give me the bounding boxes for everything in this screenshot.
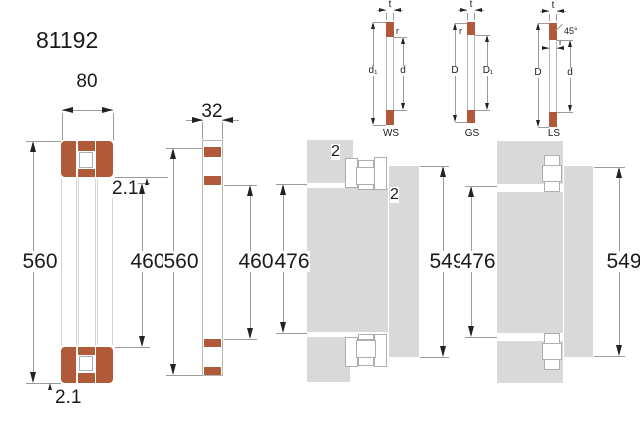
dim-r-bottom-label: 2.1 — [55, 388, 81, 407]
washer-section — [386, 110, 394, 125]
arrow-left-icon — [475, 8, 482, 12]
extension-line — [224, 339, 257, 340]
extension-line — [224, 185, 257, 186]
arrow-down-icon — [401, 103, 405, 110]
bearing-drawing-canvas: 81192 80 2.1 2.1 560 460 32 — [0, 0, 640, 440]
dim-shaft-abutment-label: 476 — [460, 251, 496, 272]
extension-line — [393, 13, 394, 20]
dim-D-label: D — [447, 66, 463, 76]
arrow-up-icon — [280, 184, 286, 195]
bearing-washer — [544, 181, 560, 192]
washer-right-bottom — [96, 347, 113, 383]
washer-edge — [474, 22, 475, 123]
roller — [79, 356, 93, 371]
extension-line — [594, 356, 625, 357]
projection-line — [76, 179, 77, 345]
arrow-up-icon — [616, 167, 622, 178]
bearing-cage — [358, 357, 374, 366]
dim-bore-label: 460 — [130, 251, 166, 272]
cage-bar — [78, 169, 95, 177]
arrow-up-icon — [401, 37, 405, 44]
cage-bar — [78, 141, 95, 151]
dim-r-label: r — [396, 27, 399, 36]
housing-block — [564, 166, 593, 357]
ls-diagram-label: LS — [542, 129, 566, 139]
extension-line — [538, 23, 549, 24]
bearing-washer — [544, 359, 560, 370]
arrow-right-icon — [102, 107, 113, 113]
ws-diagram-label: WS — [378, 129, 404, 139]
extension-line — [455, 23, 467, 24]
cage-bar — [78, 347, 95, 355]
extension-line — [26, 141, 61, 142]
extension-line — [394, 110, 407, 111]
extension-line — [420, 166, 449, 167]
washer-section — [467, 22, 475, 35]
extension-line — [386, 13, 387, 20]
bearing-roller — [542, 343, 562, 360]
extension-line — [276, 333, 307, 334]
extension-line — [276, 184, 307, 185]
washer-left-bottom — [61, 347, 76, 383]
chamfer-angle-label: 45° — [564, 27, 578, 36]
shaft-shoulder-block — [307, 337, 350, 382]
washer-section — [467, 110, 475, 123]
bearing-roller — [356, 167, 376, 185]
fillet-label: 2 — [331, 144, 340, 160]
washer-edge — [467, 22, 468, 123]
arrow-left-icon — [557, 9, 564, 13]
extension-line — [467, 13, 468, 20]
dim-d-label: d — [563, 68, 577, 78]
extension-line — [373, 22, 386, 23]
dim-od-label: 560 — [163, 251, 199, 272]
dim-r-top-label: 2.1 — [112, 179, 138, 198]
washer-right-top — [96, 141, 113, 177]
extension-line — [474, 13, 475, 20]
arrow-up-icon — [145, 178, 149, 185]
washer-left-top — [61, 141, 76, 177]
dim-od-label: 560 — [22, 251, 58, 272]
dim-width-label: 80 — [67, 72, 107, 91]
arrow-up-icon — [440, 166, 446, 177]
dim-D1-label: D₁ — [479, 66, 497, 76]
extension-line — [465, 186, 497, 187]
extension-line — [202, 122, 203, 139]
extension-line — [557, 40, 573, 41]
extension-line — [113, 113, 114, 140]
arrow-up-icon — [485, 35, 489, 42]
projection-line — [97, 179, 98, 345]
projection-line — [78, 179, 79, 345]
arrow-left-icon — [62, 107, 73, 113]
washer-band — [204, 147, 221, 157]
arrow-left-icon — [222, 117, 233, 123]
arrow-up-icon — [536, 23, 540, 30]
extension-line — [26, 383, 61, 384]
dim-shaft-abutment-label: 476 — [274, 251, 310, 272]
arrow-down-icon — [30, 372, 36, 383]
arrow-up-icon — [371, 22, 375, 29]
extension-line — [465, 337, 497, 338]
fillet-label: 2 — [390, 187, 399, 203]
extension-line — [475, 110, 490, 111]
designation-title: 81192 — [36, 28, 98, 52]
extension-line — [373, 125, 386, 126]
bearing-roller — [356, 340, 376, 358]
cage-bar — [78, 373, 95, 383]
projection-line — [61, 179, 62, 345]
arrow-down-icon — [247, 328, 253, 339]
arrow-up-icon — [468, 186, 474, 197]
arrow-down-icon — [468, 326, 474, 337]
extension-line — [455, 122, 467, 123]
dim-d-label: d — [396, 66, 410, 76]
projection-line — [95, 179, 96, 345]
extension-line — [475, 35, 490, 36]
extension-line — [394, 37, 407, 38]
washer-section — [386, 22, 394, 37]
bearing-roller — [542, 165, 562, 182]
extension-line — [166, 148, 202, 149]
dim-D-label: D — [530, 68, 546, 78]
extension-line — [222, 122, 223, 139]
washer-section — [549, 112, 557, 127]
extension-line — [62, 113, 63, 140]
extension-line — [115, 347, 150, 348]
extension-line — [557, 112, 573, 113]
extension-line — [420, 357, 449, 358]
arrow-down-icon — [485, 103, 489, 110]
extension-line — [549, 14, 550, 21]
arrow-right-icon — [542, 46, 549, 50]
roller — [79, 152, 93, 168]
shaft-block — [307, 188, 388, 332]
arrow-up-icon — [30, 141, 36, 152]
arrow-up-icon — [247, 185, 253, 196]
washer-section — [549, 23, 557, 40]
arrow-up-icon — [453, 23, 457, 30]
bearing-cage — [358, 184, 374, 190]
arrow-down-icon — [371, 118, 375, 125]
gs-diagram-label: GS — [459, 129, 485, 139]
arrow-right-icon — [542, 9, 549, 13]
arrow-down-icon — [139, 336, 145, 347]
arrow-left-icon — [394, 8, 401, 12]
extension-line — [556, 14, 557, 21]
arrow-down-icon — [616, 345, 622, 356]
shaft-block — [497, 192, 563, 333]
dim-d1-label: d₁ — [365, 66, 381, 76]
dim-r-label: r — [459, 27, 462, 36]
arrow-down-icon — [453, 115, 457, 122]
washer-band — [204, 367, 221, 375]
washer-band — [204, 339, 221, 347]
arrow-right-icon — [379, 8, 386, 12]
arrow-down-icon — [440, 346, 446, 357]
arrow-down-icon — [568, 105, 572, 112]
dim-bore-label: 460 — [238, 251, 274, 272]
arrow-left-icon — [557, 46, 564, 50]
arrow-down-icon — [170, 364, 176, 375]
extension-line — [594, 167, 625, 168]
bearing-washer — [374, 157, 387, 190]
extension-line — [166, 375, 202, 376]
arrow-up-icon — [568, 40, 572, 47]
arrow-up-icon — [48, 383, 52, 390]
arrow-down-icon — [280, 322, 286, 333]
projection-line — [112, 179, 113, 345]
arrow-up-icon — [170, 148, 176, 159]
arrow-down-icon — [536, 120, 540, 127]
arrow-right-icon — [460, 8, 467, 12]
dim-housing-abutment-label: 549 — [606, 251, 640, 272]
washer-band — [204, 176, 221, 185]
